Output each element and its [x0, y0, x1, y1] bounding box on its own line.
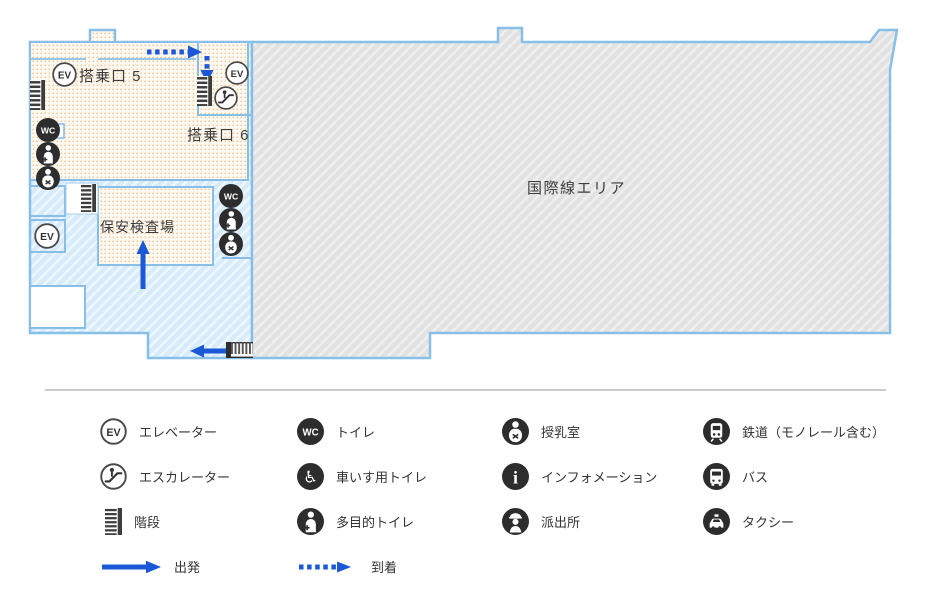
stairs-icon	[30, 80, 45, 110]
legend-label: 派出所	[541, 512, 580, 531]
legend-item-elevator: EVエレベーター	[100, 418, 315, 445]
svg-text:WC: WC	[224, 192, 238, 202]
train-icon	[703, 418, 730, 445]
arrival-arrow-icon	[297, 560, 359, 574]
svg-text:i: i	[513, 467, 518, 487]
svg-text:WC: WC	[41, 126, 55, 136]
escalator-icon	[214, 86, 238, 110]
nursing-room-icon	[36, 166, 60, 190]
legend-item-wheelchair-toilet: ♿車いす用トイレ	[297, 463, 512, 490]
police-box-icon	[502, 508, 529, 535]
legend-item-nursing-room: 授乳室	[502, 418, 717, 445]
svg-text:EV: EV	[58, 70, 72, 81]
toilet-icon: WC	[36, 118, 60, 142]
toilet-icon: WC	[297, 418, 324, 445]
legend-label: 鉄道（モノレール含む）	[742, 422, 885, 441]
legend-item-toilet: WCトイレ	[297, 418, 512, 445]
nursing-room-icon	[219, 232, 243, 256]
elevator-icon: EV	[52, 62, 77, 87]
legend-item-train: 鉄道（モノレール含む）	[703, 418, 918, 445]
multipurpose-toilet-icon	[297, 508, 324, 535]
divider	[45, 389, 886, 391]
legend-label: 車いす用トイレ	[336, 467, 427, 486]
room-box	[30, 286, 85, 328]
stairs-icon	[197, 76, 212, 106]
legend-item-arrow-solid: 出発	[100, 553, 315, 580]
security-checkpoint-label: 保安検査場	[100, 217, 175, 237]
floor-map: EV WC EV EV WC 搭乗口 5 搭乗口 6 保安検査場 国際線エリア	[0, 0, 930, 376]
legend-label: 到着	[371, 557, 397, 576]
legend-label: エレベーター	[139, 422, 217, 441]
legend-column: 授乳室iインフォメーション派出所	[502, 418, 717, 553]
legend-label: 出発	[174, 557, 200, 576]
taxi-icon	[703, 508, 730, 535]
legend-item-bus: バス	[703, 463, 918, 490]
legend-item-taxi: タクシー	[703, 508, 918, 535]
legend-label: トイレ	[336, 422, 375, 441]
information-icon: i	[502, 463, 529, 490]
international-area-label: 国際線エリア	[527, 177, 626, 198]
svg-text:♿: ♿	[303, 467, 318, 486]
multipurpose-toilet-icon	[36, 142, 60, 166]
legend-label: 授乳室	[541, 422, 580, 441]
legend-label: タクシー	[742, 512, 794, 531]
floor-map-shapes	[0, 0, 930, 376]
legend-item-multipurpose-toilet: 多目的トイレ	[297, 508, 512, 535]
stairs-icon	[81, 184, 96, 212]
elevator-icon: EV	[100, 418, 127, 445]
legend-column: WCトイレ♿車いす用トイレ多目的トイレ到着	[297, 418, 512, 598]
elevator-icon: EV	[225, 61, 249, 85]
legend-label: 階段	[134, 512, 160, 531]
toilet-icon: WC	[219, 184, 243, 208]
svg-text:EV: EV	[106, 427, 121, 439]
legend-item-arrow-dashed: 到着	[297, 553, 512, 580]
legend-item-escalator: エスカレーター	[100, 463, 315, 490]
nursing-room-icon	[502, 418, 529, 445]
legend-label: 多目的トイレ	[336, 512, 414, 531]
legend-label: バス	[742, 467, 768, 486]
legend-column: 鉄道（モノレール含む）バスタクシー	[703, 418, 918, 553]
gate5-label: 搭乗口 5	[79, 65, 142, 86]
svg-text:WC: WC	[302, 428, 318, 439]
legend-label: エスカレーター	[139, 467, 230, 486]
legend-item-information: iインフォメーション	[502, 463, 717, 490]
legend-item-stairs: 階段	[100, 508, 315, 535]
escalator-icon	[100, 463, 127, 490]
legend: EVエレベーターエスカレーター階段出発WCトイレ♿車いす用トイレ多目的トイレ到着…	[0, 418, 930, 601]
svg-text:EV: EV	[231, 69, 244, 80]
gate6-label: 搭乗口 6	[187, 124, 250, 145]
legend-label: インフォメーション	[541, 467, 657, 486]
wheelchair-toilet-icon: ♿	[297, 463, 324, 490]
elevator-icon: EV	[34, 223, 60, 249]
svg-text:EV: EV	[40, 232, 54, 243]
stairs-icon	[105, 508, 122, 535]
bus-icon	[703, 463, 730, 490]
multipurpose-toilet-icon	[219, 208, 243, 232]
departure-arrow-icon	[100, 560, 162, 574]
legend-column: EVエレベーターエスカレーター階段出発	[100, 418, 315, 598]
escalator-exit-icon	[226, 342, 253, 358]
legend-item-police-box: 派出所	[502, 508, 717, 535]
terminal-floor-map-page: EV WC EV EV WC 搭乗口 5 搭乗口 6 保安検査場 国際線エリア …	[0, 0, 930, 601]
